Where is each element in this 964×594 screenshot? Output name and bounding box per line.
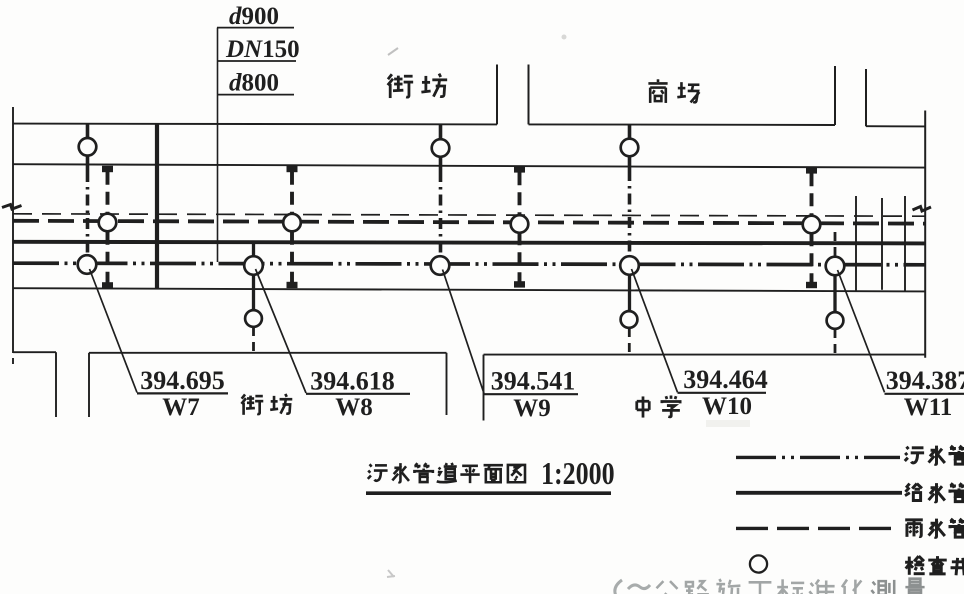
svg-text:394.387: 394.387 [886,366,964,395]
svg-text:394.618: 394.618 [310,367,395,396]
svg-text:W8: W8 [335,394,373,421]
svg-text:1:2000: 1:2000 [541,457,615,492]
svg-text:DN150: DN150 [225,36,300,63]
svg-text:394.464: 394.464 [683,365,768,394]
svg-text:W7: W7 [162,394,200,421]
svg-text:394.541: 394.541 [491,367,576,396]
svg-text:d800: d800 [229,70,279,97]
svg-text:394.695: 394.695 [140,366,225,395]
svg-text:W9: W9 [513,395,551,422]
svg-text:d900: d900 [229,3,279,30]
svg-text:W10: W10 [702,393,752,420]
svg-text:W11: W11 [904,394,953,421]
